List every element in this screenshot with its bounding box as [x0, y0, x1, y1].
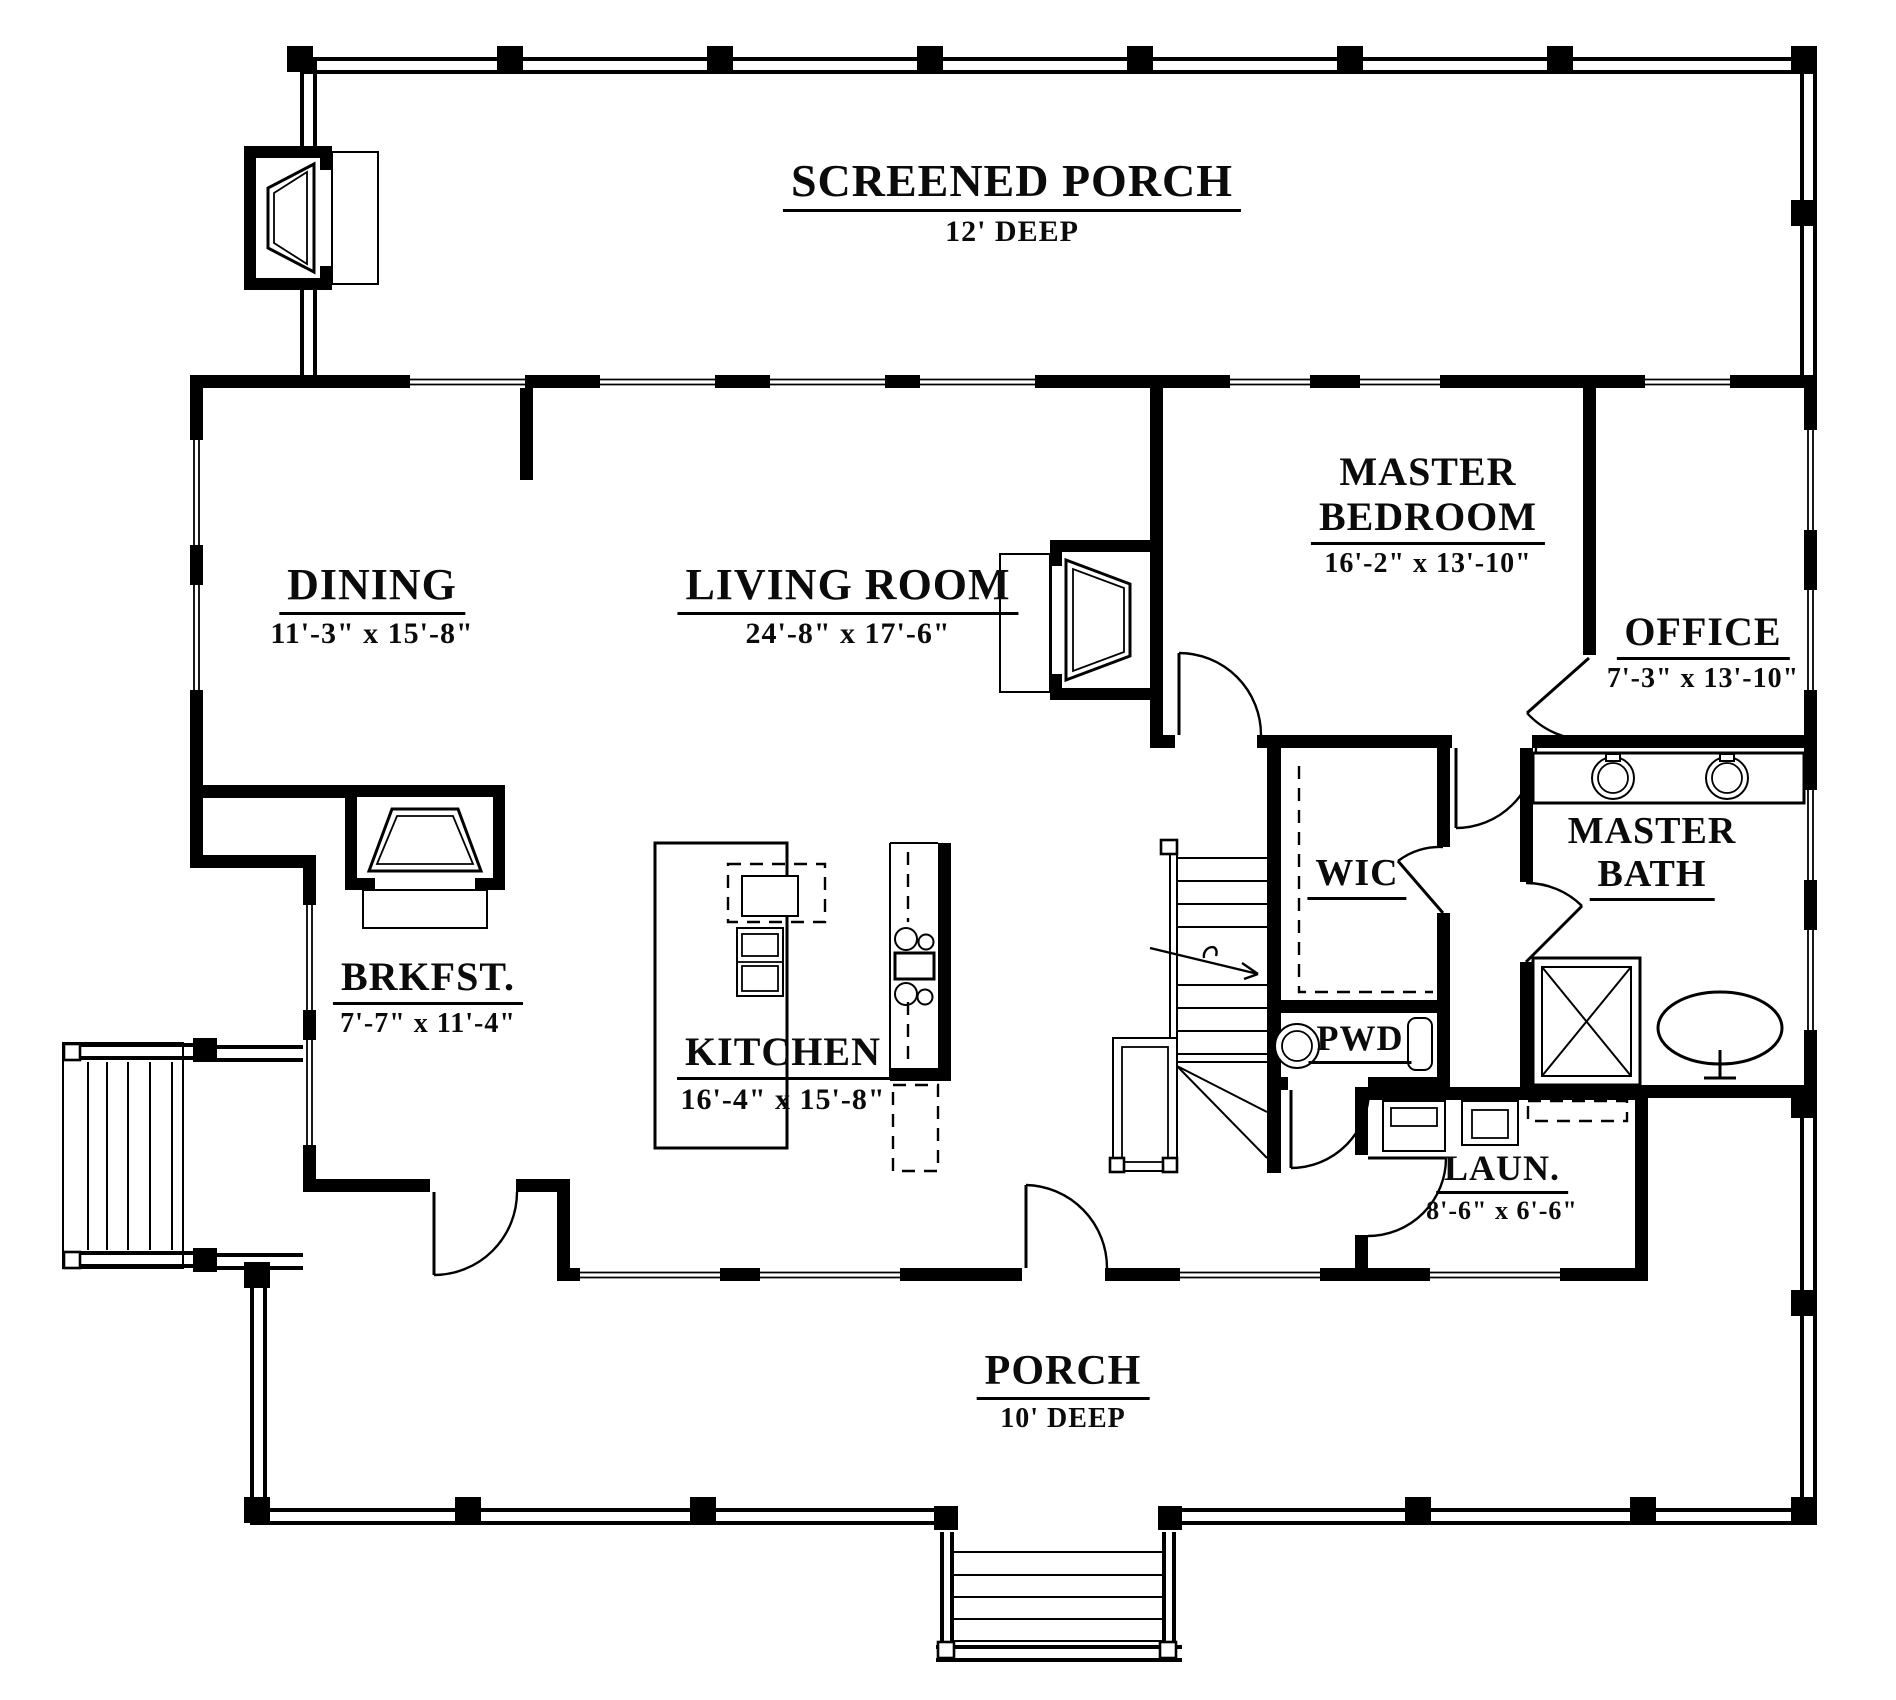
room-dims: 7'-7" x 11'-4"	[333, 1008, 523, 1040]
stairs	[1110, 840, 1267, 1172]
room-dims: 24'-8" x 17'-6"	[677, 617, 1018, 651]
porch-fireplace-icon	[244, 146, 378, 290]
room-label-screened-porch: SCREENED PORCH 12' DEEP	[783, 155, 1241, 249]
room-label-office: OFFICE 7'-3" x 13'-10"	[1607, 610, 1799, 695]
room-dims: 12' DEEP	[783, 215, 1241, 249]
room-name: PWD	[1309, 1018, 1412, 1064]
room-dims: 7'-3" x 13'-10"	[1607, 663, 1799, 695]
room-dims: 16'-2" x 13'-10"	[1311, 548, 1545, 580]
sink-icon	[1408, 1018, 1432, 1070]
room-label-master-bedroom: MASTER BEDROOM 16'-2" x 13'-10"	[1311, 450, 1545, 580]
room-label-laundry: LAUN. 8'-6" x 6'-6"	[1426, 1148, 1578, 1226]
living-fireplace-icon	[1000, 540, 1162, 700]
vanity-counter	[1533, 753, 1804, 803]
bathtub-icon	[1658, 992, 1782, 1078]
floor-plan: SCREENED PORCH 12' DEEP DINING 11'-3" x …	[0, 0, 1896, 1700]
room-dims: 8'-6" x 6'-6"	[1426, 1196, 1578, 1226]
room-label-brkfst: BRKFST. 7'-7" x 11'-4"	[333, 955, 523, 1040]
room-label-kitchen: KITCHEN 16'-4" x 15'-8"	[677, 1030, 889, 1117]
room-name: LAUN.	[1436, 1148, 1568, 1194]
room-name: BRKFST.	[333, 954, 523, 1005]
room-name-line1: MASTER	[1339, 449, 1516, 494]
room-label-dining: DINING 11'-3" x 15'-8"	[270, 560, 473, 651]
room-name: DINING	[279, 560, 465, 615]
side-steps	[63, 1038, 303, 1272]
room-name: OFFICE	[1616, 609, 1789, 660]
room-name-line1: MASTER	[1568, 810, 1737, 852]
room-name: PORCH	[977, 1348, 1150, 1400]
room-label-porch: PORCH 10' DEEP	[977, 1348, 1150, 1435]
room-name: LIVING ROOM	[677, 560, 1018, 615]
room-dims: 16'-4" x 15'-8"	[677, 1083, 889, 1117]
room-name-line2: BEDROOM	[1311, 494, 1545, 545]
room-dims: 11'-3" x 15'-8"	[270, 617, 473, 651]
room-name: SCREENED PORCH	[783, 155, 1241, 212]
room-label-living-room: LIVING ROOM 24'-8" x 17'-6"	[677, 560, 1018, 651]
room-name: WIC	[1307, 852, 1406, 900]
dining-fireplace-icon	[345, 785, 505, 928]
entry-steps	[934, 1506, 1182, 1662]
room-name-line2: BATH	[1590, 853, 1715, 901]
master-bath-fixtures	[1533, 753, 1804, 1085]
laundry-fixtures	[1383, 1101, 1627, 1151]
room-name: KITCHEN	[677, 1029, 889, 1080]
room-label-wic: WIC	[1307, 852, 1406, 895]
shower-icon	[1533, 958, 1640, 1085]
room-label-master-bath: MASTER BATH	[1568, 810, 1737, 895]
room-dims: 10' DEEP	[977, 1403, 1150, 1435]
room-label-pwd: PWD	[1309, 1018, 1412, 1058]
porch-railing	[244, 1092, 1817, 1525]
